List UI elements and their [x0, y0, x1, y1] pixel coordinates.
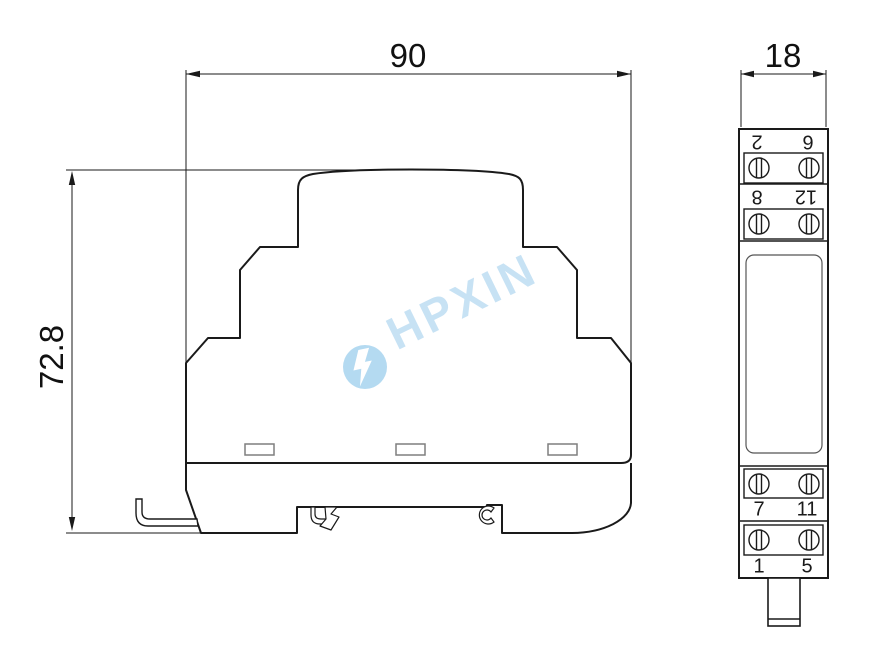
label-panel: [746, 255, 822, 453]
terminal-label-11: 11: [797, 499, 818, 522]
dim-height: [66, 170, 416, 533]
terminal-label-6: 6: [802, 130, 813, 153]
arrow-left-icon: [741, 71, 754, 77]
dim-width: [186, 70, 631, 362]
arrow-right-icon: [813, 71, 826, 77]
arrow-up-icon: [69, 171, 75, 185]
terminal-label-2: 2: [751, 130, 762, 153]
din-release-clip: [136, 499, 198, 526]
terminal-label-12: 12: [795, 185, 817, 208]
terminal-label-5: 5: [801, 556, 812, 579]
screw-terminal: [799, 530, 819, 550]
screw-terminal: [799, 158, 819, 178]
dim-width-label: 90: [390, 37, 427, 75]
housing-outline: [186, 170, 631, 464]
din-rail-base-outline: [186, 463, 631, 533]
terminal-label-1: 1: [753, 556, 764, 579]
screw-terminal: [749, 214, 769, 234]
vent-slot-right: [548, 444, 577, 455]
screw-terminal: [799, 214, 819, 234]
screw-terminal: [749, 530, 769, 550]
rail-hook-right: [479, 506, 494, 524]
screw-terminal: [749, 474, 769, 494]
screw-terminal: [749, 158, 769, 178]
vent-slot-center: [396, 444, 425, 455]
dim-depth: [741, 70, 826, 127]
dim-height-label: 72.8: [33, 325, 71, 389]
technical-drawing-canvas: HPXIN: [0, 0, 876, 656]
vent-slot-left: [245, 444, 274, 455]
drawing-linework: [0, 0, 876, 656]
dim-depth-label: 18: [765, 37, 802, 75]
terminal-label-8: 8: [751, 185, 762, 208]
arrow-down-icon: [69, 517, 75, 531]
front-view: [136, 170, 631, 534]
terminal-label-7: 7: [753, 499, 764, 522]
arrow-left-icon: [186, 71, 200, 77]
screw-terminal: [799, 474, 819, 494]
arrow-right-icon: [617, 71, 631, 77]
